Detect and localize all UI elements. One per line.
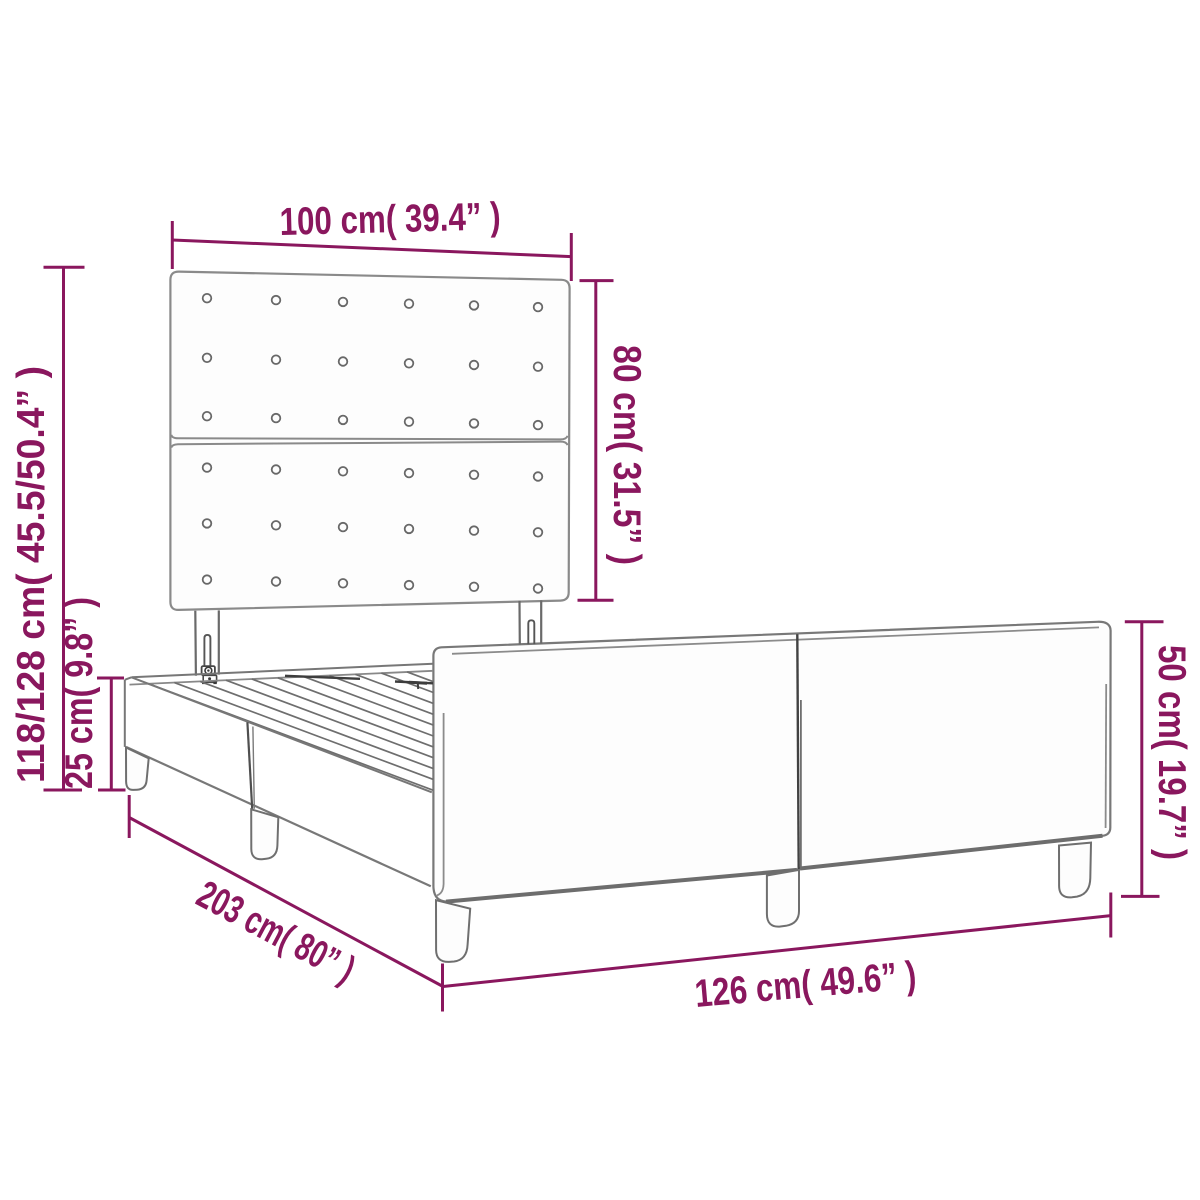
svg-text:80 cm( 31.5” ): 80 cm( 31.5” ) bbox=[605, 345, 648, 565]
svg-text:118/128 cm( 45.5/50.4” ): 118/128 cm( 45.5/50.4” ) bbox=[10, 366, 53, 783]
svg-text:100 cm( 39.4” ): 100 cm( 39.4” ) bbox=[279, 195, 501, 244]
svg-text:25 cm( 9.8” ): 25 cm( 9.8” ) bbox=[58, 597, 101, 789]
svg-text:50 cm( 19.7” ): 50 cm( 19.7” ) bbox=[1150, 645, 1193, 860]
